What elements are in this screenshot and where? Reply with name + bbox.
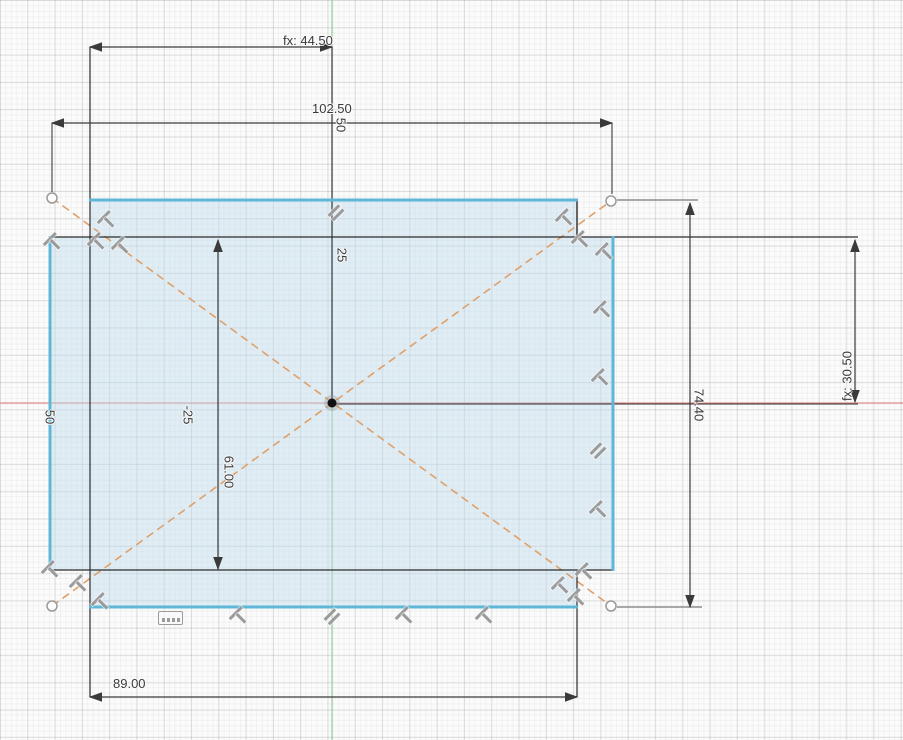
construction-endpoint[interactable] xyxy=(606,196,616,206)
dim-text-74-40[interactable]: 74.40 xyxy=(692,389,707,422)
origin-point[interactable] xyxy=(328,399,337,408)
dim-text-50-left[interactable]: 50 xyxy=(43,410,58,424)
construction-endpoint[interactable] xyxy=(47,601,57,611)
dim-text-neg-25[interactable]: -25 xyxy=(181,406,196,425)
dim-text-89-00[interactable]: 89.00 xyxy=(113,676,146,691)
dim-text-50-top[interactable]: 50 xyxy=(334,118,349,132)
dim-text-fx-30-50[interactable]: fx: 30.50 xyxy=(840,351,855,401)
dim-text-fx-44-50[interactable]: fx: 44.50 xyxy=(283,33,333,48)
dim-text-61-00[interactable]: 61.00 xyxy=(222,456,237,489)
construction-endpoint[interactable] xyxy=(606,601,616,611)
dim-text-102-50[interactable]: 102.50 xyxy=(312,101,352,116)
sketch-geometry xyxy=(0,0,903,740)
construction-endpoint[interactable] xyxy=(47,193,57,203)
sketch-canvas[interactable]: fx: 44.50 102.50 50 25 -25 50 61.00 74.4… xyxy=(0,0,903,740)
rectangular-pattern-icon[interactable] xyxy=(158,611,184,627)
dim-text-25[interactable]: 25 xyxy=(335,248,350,262)
